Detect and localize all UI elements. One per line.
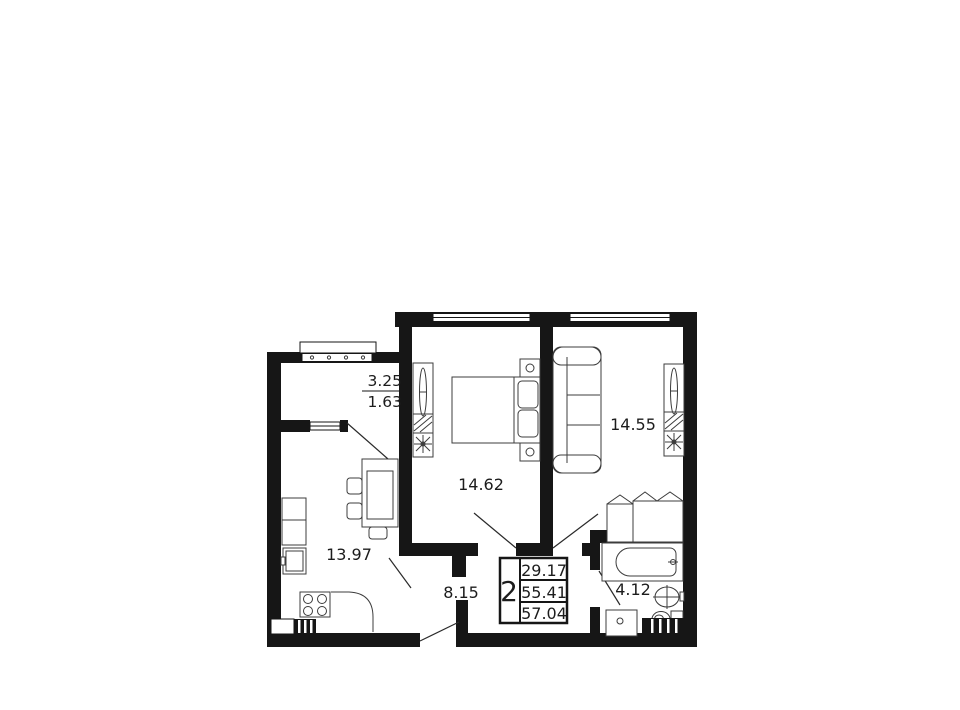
bottom-exterior-wall-right <box>456 633 697 647</box>
hallway-area-label: 8.15 <box>443 583 479 602</box>
chair <box>347 478 362 494</box>
counter-edge-curve <box>331 592 373 632</box>
balcony-bottom-wall-a <box>281 420 310 432</box>
sink-tap-icon <box>281 557 285 565</box>
vent-slat <box>310 620 313 633</box>
apartment-area-value: 55.41 <box>521 583 567 602</box>
balcony-area-reduced-label: 1.63 <box>367 393 402 411</box>
balcony-glazing <box>300 342 376 353</box>
living-room-furniture <box>553 347 684 542</box>
floor-plan-canvas: 3.25 1.63 14.62 14.55 13.97 8.15 4.12 2 … <box>0 0 960 710</box>
chair <box>369 527 387 539</box>
left-exterior-wall <box>267 352 281 647</box>
floor-plan-drawing: 3.25 1.63 14.62 14.55 13.97 8.15 4.12 2 … <box>0 0 960 710</box>
apartment-info-table: 2 29.17 55.41 57.04 <box>500 558 567 623</box>
nightstand <box>520 359 540 377</box>
vent-slat <box>651 619 654 633</box>
kitchen-hall-stub <box>452 543 466 577</box>
nightstand <box>520 443 540 461</box>
bathroom-left-wall-upper <box>590 530 600 570</box>
vent-slat <box>659 619 662 633</box>
entrance-door-leaf <box>420 622 459 641</box>
bathroom-vent-shaft <box>642 618 686 634</box>
bottom-exterior-wall-left <box>267 633 420 647</box>
vent-slat <box>667 619 670 633</box>
bedroom-area-label: 14.62 <box>458 475 504 494</box>
kitchen-area-label: 13.97 <box>326 545 372 564</box>
basin-tap-icon <box>680 592 684 601</box>
living-area-value: 29.17 <box>521 561 567 580</box>
center-door-stub <box>516 543 553 556</box>
chair <box>347 503 362 519</box>
living-room-area-label: 14.55 <box>610 415 656 434</box>
closet-wide <box>633 501 683 542</box>
balcony-area-full-label: 3.25 <box>367 372 402 390</box>
pillow <box>518 381 538 408</box>
balcony-bottom-wall-b <box>340 420 348 432</box>
closet-rod-icon <box>633 492 657 501</box>
entrance-jamb <box>456 600 468 647</box>
bathroom-left-wall-lower <box>590 607 600 647</box>
kitchen-duct <box>271 619 294 634</box>
plant-icon <box>665 433 683 451</box>
balcony-door-leaf <box>347 423 388 459</box>
bedroom-door-leaf <box>474 513 516 548</box>
closet-rod-icon <box>657 492 683 501</box>
right-exterior-wall <box>683 312 697 647</box>
total-area-value: 57.04 <box>521 604 567 623</box>
rooms-count-label: 2 <box>500 575 518 608</box>
pillow <box>518 410 538 437</box>
vent-slat <box>298 620 301 633</box>
closet-rod-icon <box>607 495 633 504</box>
kitchen-counter <box>282 498 306 545</box>
plant-icon <box>414 435 432 453</box>
vent-slat <box>304 620 307 633</box>
kitchen-door-leaf <box>389 558 411 588</box>
sofa <box>553 347 601 473</box>
kitchen-bedroom-wall <box>399 312 412 556</box>
bathroom-area-label: 4.12 <box>615 580 651 599</box>
closet <box>607 504 633 542</box>
bedroom-furniture <box>413 359 540 461</box>
bedroom-living-divider-wall <box>540 327 553 543</box>
vent-slat <box>675 619 678 633</box>
bedroom-bottom-wall <box>399 543 478 556</box>
